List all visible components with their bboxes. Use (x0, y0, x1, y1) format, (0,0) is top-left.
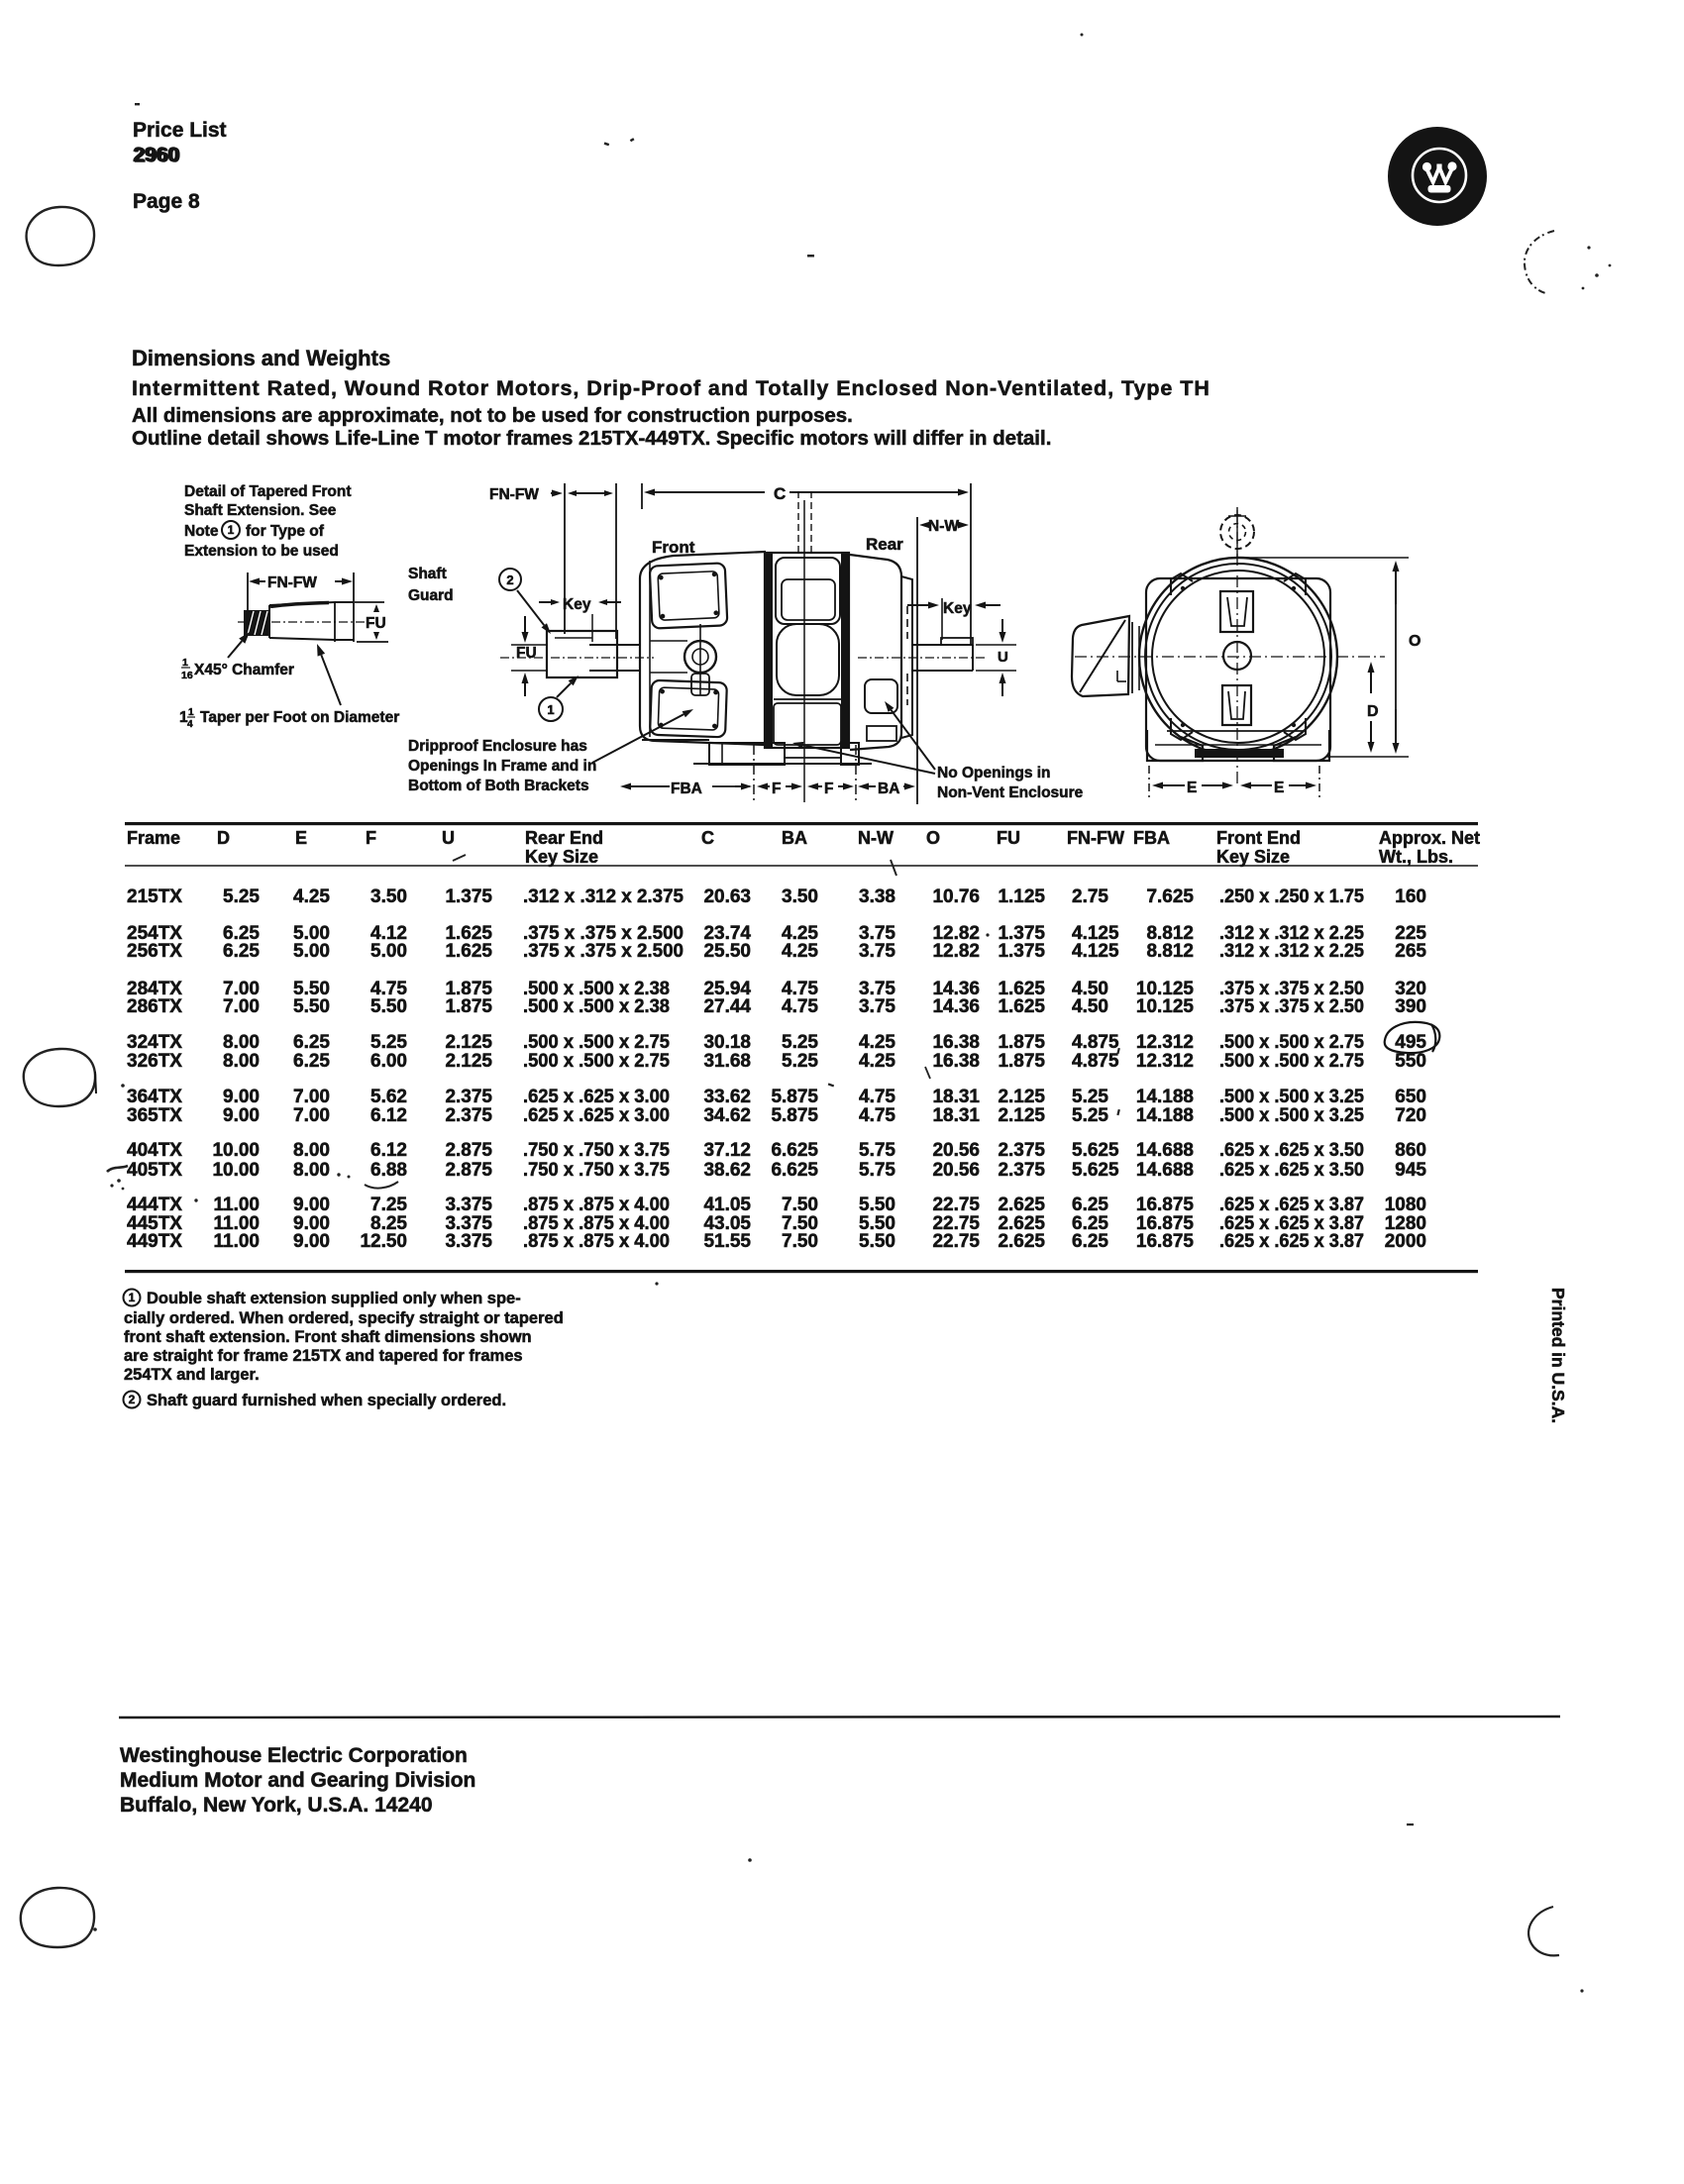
svg-text:F: F (366, 828, 376, 848)
svg-text:Outline detail shows Life-Line: Outline detail shows Life-Line T motor f… (132, 427, 1051, 450)
svg-text:495: 495 (1395, 1032, 1426, 1053)
svg-text:31.68: 31.68 (703, 1051, 751, 1072)
svg-text:Key: Key (563, 596, 591, 613)
svg-text:2.125: 2.125 (998, 1087, 1045, 1107)
svg-text:14.188: 14.188 (1136, 1105, 1194, 1126)
svg-text:FN-FW: FN-FW (267, 574, 317, 591)
svg-text:Dripproof Enclosure has: Dripproof Enclosure has (408, 738, 587, 755)
svg-text:4.75: 4.75 (782, 996, 818, 1017)
svg-text:Shaft Extension. See: Shaft Extension. See (184, 502, 337, 519)
svg-text:3.375: 3.375 (445, 1195, 492, 1215)
svg-text:6.25: 6.25 (1072, 1231, 1108, 1252)
svg-text:20.63: 20.63 (703, 886, 751, 907)
svg-text:4.25: 4.25 (859, 1032, 895, 1053)
svg-text:12.312: 12.312 (1136, 1051, 1194, 1072)
svg-text:.625 x .625 x 3.50: .625 x .625 x 3.50 (1219, 1160, 1364, 1181)
svg-text:449TX: 449TX (127, 1231, 182, 1252)
svg-text:8.00: 8.00 (223, 1032, 260, 1053)
svg-text:.250 x .250 x 1.75: .250 x .250 x 1.75 (1219, 886, 1364, 907)
svg-text:215TX: 215TX (127, 886, 182, 907)
svg-text:16.38: 16.38 (932, 1032, 980, 1053)
svg-text:16.875: 16.875 (1136, 1231, 1195, 1252)
svg-text:860: 860 (1395, 1140, 1426, 1161)
svg-text:1.625: 1.625 (445, 941, 492, 962)
svg-text:3.375: 3.375 (445, 1231, 492, 1252)
svg-text:Shaft: Shaft (408, 566, 447, 582)
svg-text:Note: Note (184, 523, 219, 540)
svg-text:6.12: 6.12 (370, 1105, 407, 1126)
svg-text:2.375: 2.375 (445, 1105, 492, 1126)
svg-text:6.25: 6.25 (223, 941, 260, 962)
svg-text:Medium Motor and Gearing Divis: Medium Motor and Gearing Division (120, 1769, 475, 1792)
svg-text:C: C (774, 484, 786, 503)
svg-text:1: 1 (228, 523, 235, 537)
svg-text:9.00: 9.00 (223, 1105, 260, 1126)
svg-text:10.76: 10.76 (932, 886, 980, 907)
svg-text:All dimensions are approximate: All dimensions are approximate, not to b… (132, 404, 853, 427)
svg-text:O: O (926, 828, 940, 848)
svg-text:FU: FU (366, 615, 386, 632)
svg-text:4.75: 4.75 (859, 1087, 895, 1107)
svg-text:405TX: 405TX (127, 1160, 182, 1181)
svg-text:cially ordered. When ordered,: cially ordered. When ordered, specify st… (124, 1309, 564, 1327)
svg-text:7.50: 7.50 (782, 1195, 818, 1215)
svg-text:3.75: 3.75 (859, 941, 895, 962)
svg-text:1: 1 (188, 707, 194, 718)
svg-text:Key: Key (943, 600, 972, 617)
svg-text:2.875: 2.875 (445, 1140, 492, 1161)
svg-text:4: 4 (187, 719, 193, 730)
svg-text:37.12: 37.12 (703, 1140, 751, 1161)
svg-text:6.12: 6.12 (370, 1140, 407, 1161)
svg-text:D: D (217, 828, 230, 848)
svg-text:6.625: 6.625 (771, 1160, 818, 1181)
svg-text:1.625: 1.625 (998, 996, 1045, 1017)
svg-text:N-W: N-W (858, 828, 894, 848)
svg-text:286TX: 286TX (127, 996, 182, 1017)
svg-text:160: 160 (1395, 886, 1426, 907)
svg-text:5.25: 5.25 (1072, 1087, 1108, 1107)
svg-text:9.00: 9.00 (293, 1231, 330, 1252)
svg-text:.375 x .375 x 2.500: .375 x .375 x 2.500 (523, 941, 684, 962)
svg-text:FN-FW: FN-FW (1067, 828, 1124, 848)
svg-text:.500 x .500 x 2.75: .500 x .500 x 2.75 (1219, 1051, 1364, 1072)
svg-text:3.38: 3.38 (859, 886, 895, 907)
svg-text:FN-FW: FN-FW (489, 486, 539, 503)
svg-text:Key Size: Key Size (1216, 847, 1290, 867)
svg-text:11.00: 11.00 (214, 1231, 261, 1252)
svg-text:34.62: 34.62 (703, 1105, 751, 1126)
svg-text:5.25: 5.25 (223, 886, 260, 907)
svg-text:5.875: 5.875 (771, 1087, 818, 1107)
svg-text:D: D (1367, 703, 1379, 720)
svg-text:2000: 2000 (1385, 1231, 1426, 1252)
svg-text:Rear End: Rear End (525, 828, 603, 848)
svg-text:8.00: 8.00 (293, 1140, 330, 1161)
svg-text:.312 x .312 x 2.375: .312 x .312 x 2.375 (523, 886, 684, 907)
svg-text:Front End: Front End (1216, 828, 1301, 848)
svg-text:.625 x .625 x 3.87: .625 x .625 x 3.87 (1219, 1195, 1364, 1215)
svg-text:2.375: 2.375 (998, 1140, 1045, 1161)
svg-text:.500 x .500 x 3.25: .500 x .500 x 3.25 (1219, 1105, 1364, 1126)
svg-text:16: 16 (181, 670, 193, 681)
svg-text:Dimensions and Weights: Dimensions and Weights (132, 346, 390, 370)
svg-text:are straight for frame 215TX a: are straight for frame 215TX and tapered… (124, 1347, 523, 1365)
svg-text:Rear: Rear (866, 535, 903, 554)
svg-text:324TX: 324TX (127, 1032, 182, 1053)
svg-text:1080: 1080 (1385, 1195, 1426, 1215)
svg-text:265: 265 (1395, 941, 1426, 962)
svg-text:FBA: FBA (1133, 828, 1170, 848)
svg-text:FBA: FBA (671, 780, 702, 797)
svg-text:5.875: 5.875 (771, 1105, 818, 1126)
svg-text:6.25: 6.25 (1072, 1195, 1108, 1215)
svg-text:3.50: 3.50 (370, 886, 407, 907)
svg-text:.375 x .375 x 2.50: .375 x .375 x 2.50 (1219, 996, 1364, 1017)
svg-text:1.875: 1.875 (445, 996, 492, 1017)
svg-text:10.00: 10.00 (212, 1160, 260, 1181)
svg-text:12.50: 12.50 (360, 1231, 407, 1252)
svg-text:5.50: 5.50 (859, 1195, 895, 1215)
svg-text:25.50: 25.50 (703, 941, 751, 962)
svg-text:2.375: 2.375 (445, 1087, 492, 1107)
svg-text:.625 x .625 x 3.00: .625 x .625 x 3.00 (523, 1105, 670, 1126)
svg-text:Page 8: Page 8 (133, 190, 200, 213)
svg-text:.500 x .500 x 2.75: .500 x .500 x 2.75 (1219, 1032, 1364, 1053)
svg-text:2.625: 2.625 (998, 1231, 1045, 1252)
svg-text:Frame: Frame (127, 828, 180, 848)
svg-text:E: E (295, 828, 307, 848)
svg-text:5.75: 5.75 (859, 1160, 895, 1181)
svg-text:27.44: 27.44 (703, 996, 751, 1017)
svg-text:14.688: 14.688 (1136, 1140, 1194, 1161)
svg-text:2.375: 2.375 (998, 1160, 1045, 1181)
svg-text:4.50: 4.50 (1072, 996, 1108, 1017)
svg-text:7.00: 7.00 (223, 996, 260, 1017)
svg-text:BA: BA (878, 780, 899, 797)
svg-text:Buffalo, New York, U.S.A. 1424: Buffalo, New York, U.S.A. 14240 (120, 1794, 433, 1817)
svg-text:.750 x .750 x 3.75: .750 x .750 x 3.75 (523, 1140, 670, 1161)
svg-text:720: 720 (1395, 1105, 1426, 1126)
svg-text:.625 x .625 x 3.50: .625 x .625 x 3.50 (1219, 1140, 1364, 1161)
svg-text:.625 x .625 x 3.00: .625 x .625 x 3.00 (523, 1087, 670, 1107)
svg-text:E: E (1274, 780, 1284, 796)
svg-text:BA: BA (782, 828, 807, 848)
svg-text:E: E (1187, 780, 1197, 796)
svg-text:FU: FU (997, 828, 1020, 848)
svg-text:.625 x .625 x 3.87: .625 x .625 x 3.87 (1219, 1231, 1364, 1252)
svg-text:for Type of: for Type of (246, 523, 325, 540)
svg-text:5.75: 5.75 (859, 1140, 895, 1161)
svg-text:7.50: 7.50 (782, 1231, 818, 1252)
svg-text:8.00: 8.00 (223, 1051, 260, 1072)
svg-text:5.62: 5.62 (370, 1087, 407, 1107)
svg-text:U: U (998, 649, 1008, 666)
svg-text:7.625: 7.625 (1146, 886, 1194, 907)
svg-text:30.18: 30.18 (703, 1032, 751, 1053)
svg-text:444TX: 444TX (127, 1195, 182, 1215)
svg-text:.750 x .750 x 3.75: .750 x .750 x 3.75 (523, 1160, 670, 1181)
svg-text:38.62: 38.62 (703, 1160, 751, 1181)
svg-text:X45° Chamfer: X45° Chamfer (194, 662, 294, 678)
svg-text:390: 390 (1395, 996, 1426, 1017)
svg-text:14.188: 14.188 (1136, 1087, 1194, 1107)
svg-text:22.75: 22.75 (932, 1195, 980, 1215)
svg-text:6.00: 6.00 (370, 1051, 407, 1072)
svg-text:9.00: 9.00 (223, 1087, 260, 1107)
svg-text:5.50: 5.50 (370, 996, 407, 1017)
svg-text:20.56: 20.56 (932, 1140, 980, 1161)
svg-text:5.25: 5.25 (782, 1051, 818, 1072)
svg-text:2.125: 2.125 (445, 1032, 492, 1053)
svg-text:1.875: 1.875 (998, 1051, 1045, 1072)
svg-text:.500 x .500 x 2.75: .500 x .500 x 2.75 (523, 1032, 670, 1053)
svg-text:2.75: 2.75 (1072, 886, 1108, 907)
svg-text:1: 1 (182, 657, 188, 669)
svg-text:365TX: 365TX (127, 1105, 182, 1126)
svg-text:3.75: 3.75 (859, 996, 895, 1017)
svg-text:N-W: N-W (928, 518, 959, 535)
svg-text:5.00: 5.00 (293, 941, 330, 962)
svg-text:Printed in U.S.A.: Printed in U.S.A. (1548, 1288, 1568, 1423)
svg-text:U: U (442, 828, 455, 848)
svg-text:1.125: 1.125 (998, 886, 1045, 907)
svg-text:.875 x .875 x 4.00: .875 x .875 x 4.00 (523, 1195, 670, 1215)
svg-text:650: 650 (1395, 1087, 1426, 1107)
svg-text:.875 x .875 x 4.00: .875 x .875 x 4.00 (523, 1231, 670, 1252)
svg-text:Guard: Guard (408, 587, 454, 604)
svg-text:6.25: 6.25 (293, 1032, 330, 1053)
svg-text:F: F (824, 780, 833, 797)
svg-text:3.50: 3.50 (782, 886, 818, 907)
svg-text:2.625: 2.625 (998, 1195, 1045, 1215)
svg-text:14.36: 14.36 (932, 996, 980, 1017)
svg-text:Detail of Tapered Front: Detail of Tapered Front (184, 483, 352, 500)
svg-text:12.312: 12.312 (1136, 1032, 1194, 1053)
svg-text:6.625: 6.625 (771, 1140, 818, 1161)
svg-text:2.875: 2.875 (445, 1160, 492, 1181)
svg-text:Taper per Foot on Diameter: Taper per Foot on Diameter (200, 709, 399, 726)
svg-text:Price List: Price List (133, 119, 227, 142)
svg-text:5.50: 5.50 (293, 996, 330, 1017)
svg-text:7.00: 7.00 (293, 1105, 330, 1126)
svg-text:5.625: 5.625 (1072, 1160, 1119, 1181)
svg-text:20.56: 20.56 (932, 1160, 980, 1181)
svg-text:2: 2 (129, 1393, 136, 1406)
svg-text:Extension to be used: Extension to be used (184, 543, 339, 560)
svg-text:16.875: 16.875 (1136, 1195, 1195, 1215)
svg-text:945: 945 (1395, 1160, 1426, 1181)
svg-text:2960: 2960 (135, 145, 181, 167)
svg-text:1: 1 (129, 1291, 136, 1304)
svg-text:1: 1 (547, 702, 554, 717)
svg-text:F: F (772, 780, 781, 797)
svg-text:9.00: 9.00 (293, 1195, 330, 1215)
svg-text:7.25: 7.25 (370, 1195, 407, 1215)
svg-text:4.25: 4.25 (782, 941, 818, 962)
svg-text:5.50: 5.50 (859, 1231, 895, 1252)
svg-text:8.812: 8.812 (1146, 941, 1194, 962)
svg-text:Intermittent Rated, Wound Roto: Intermittent Rated, Wound Rotor Motors, … (132, 376, 1210, 400)
svg-text:12.82: 12.82 (932, 941, 980, 962)
svg-text:.500 x .500 x 2.75: .500 x .500 x 2.75 (523, 1051, 670, 1072)
svg-text:No Openings in: No Openings in (937, 765, 1051, 781)
svg-text:Double shaft extension supplie: Double shaft extension supplied only whe… (147, 1290, 521, 1307)
svg-text:33.62: 33.62 (703, 1087, 751, 1107)
svg-text:C: C (701, 828, 714, 848)
svg-text:326TX: 326TX (127, 1051, 182, 1072)
svg-text:1.375: 1.375 (445, 886, 492, 907)
svg-text:.500 x .500 x 3.25: .500 x .500 x 3.25 (1219, 1087, 1364, 1107)
svg-text:Non-Vent Enclosure: Non-Vent Enclosure (937, 784, 1084, 801)
svg-text:4.75: 4.75 (859, 1105, 895, 1126)
svg-text:8.00: 8.00 (293, 1160, 330, 1181)
svg-text:7.00: 7.00 (293, 1087, 330, 1107)
svg-text:Front: Front (652, 538, 695, 557)
svg-text:5.00: 5.00 (370, 941, 407, 962)
svg-text:404TX: 404TX (127, 1140, 182, 1161)
svg-text:41.05: 41.05 (703, 1195, 751, 1215)
svg-text:Bottom of Both Brackets: Bottom of Both Brackets (408, 778, 589, 794)
svg-text:4.25: 4.25 (859, 1051, 895, 1072)
svg-text:11.00: 11.00 (214, 1195, 261, 1215)
svg-text:5.625: 5.625 (1072, 1140, 1119, 1161)
svg-text:22.75: 22.75 (932, 1231, 980, 1252)
svg-text:6.88: 6.88 (370, 1160, 407, 1181)
svg-text:6.25: 6.25 (293, 1051, 330, 1072)
svg-text:364TX: 364TX (127, 1087, 182, 1107)
svg-text:14.688: 14.688 (1136, 1160, 1194, 1181)
svg-text:2.125: 2.125 (998, 1105, 1045, 1126)
svg-text:4.875: 4.875 (1072, 1032, 1119, 1053)
svg-text:256TX: 256TX (127, 941, 182, 962)
svg-text:51.55: 51.55 (703, 1231, 751, 1252)
svg-text:O: O (1409, 633, 1421, 650)
svg-text:1.875: 1.875 (998, 1032, 1045, 1053)
svg-text:16.38: 16.38 (932, 1051, 980, 1072)
svg-text:4.125: 4.125 (1072, 941, 1119, 962)
svg-text:1.375: 1.375 (998, 941, 1045, 962)
svg-text:5.25: 5.25 (1072, 1105, 1108, 1126)
svg-text:18.31: 18.31 (932, 1087, 980, 1107)
svg-text:FU: FU (516, 645, 537, 662)
svg-text:2.125: 2.125 (445, 1051, 492, 1072)
svg-text:4.25: 4.25 (293, 886, 330, 907)
svg-text:4.875: 4.875 (1072, 1051, 1119, 1072)
svg-text:10.00: 10.00 (212, 1140, 260, 1161)
svg-text:5.25: 5.25 (370, 1032, 407, 1053)
svg-text:254TX and larger.: 254TX and larger. (124, 1366, 260, 1384)
svg-text:Wt., Lbs.: Wt., Lbs. (1379, 847, 1453, 867)
svg-text:Openings In Frame and in: Openings In Frame and in (408, 758, 596, 775)
svg-text:10.125: 10.125 (1136, 996, 1195, 1017)
svg-text:.312 x .312 x 2.25: .312 x .312 x 2.25 (1219, 941, 1364, 962)
svg-text:5.25: 5.25 (782, 1032, 818, 1053)
svg-text:Shaft guard furnished when spe: Shaft guard furnished when specially ord… (147, 1392, 506, 1409)
svg-text:Key Size: Key Size (525, 847, 598, 867)
svg-text:front shaft extension. Front s: front shaft extension. Front shaft dimen… (124, 1328, 532, 1346)
svg-text:Westinghouse Electric Corporat: Westinghouse Electric Corporation (120, 1744, 468, 1767)
svg-text:18.31: 18.31 (932, 1105, 980, 1126)
svg-text:.500 x .500 x 2.38: .500 x .500 x 2.38 (523, 996, 670, 1017)
svg-text:Approx. Net: Approx. Net (1379, 828, 1480, 848)
svg-text:2: 2 (506, 572, 513, 587)
